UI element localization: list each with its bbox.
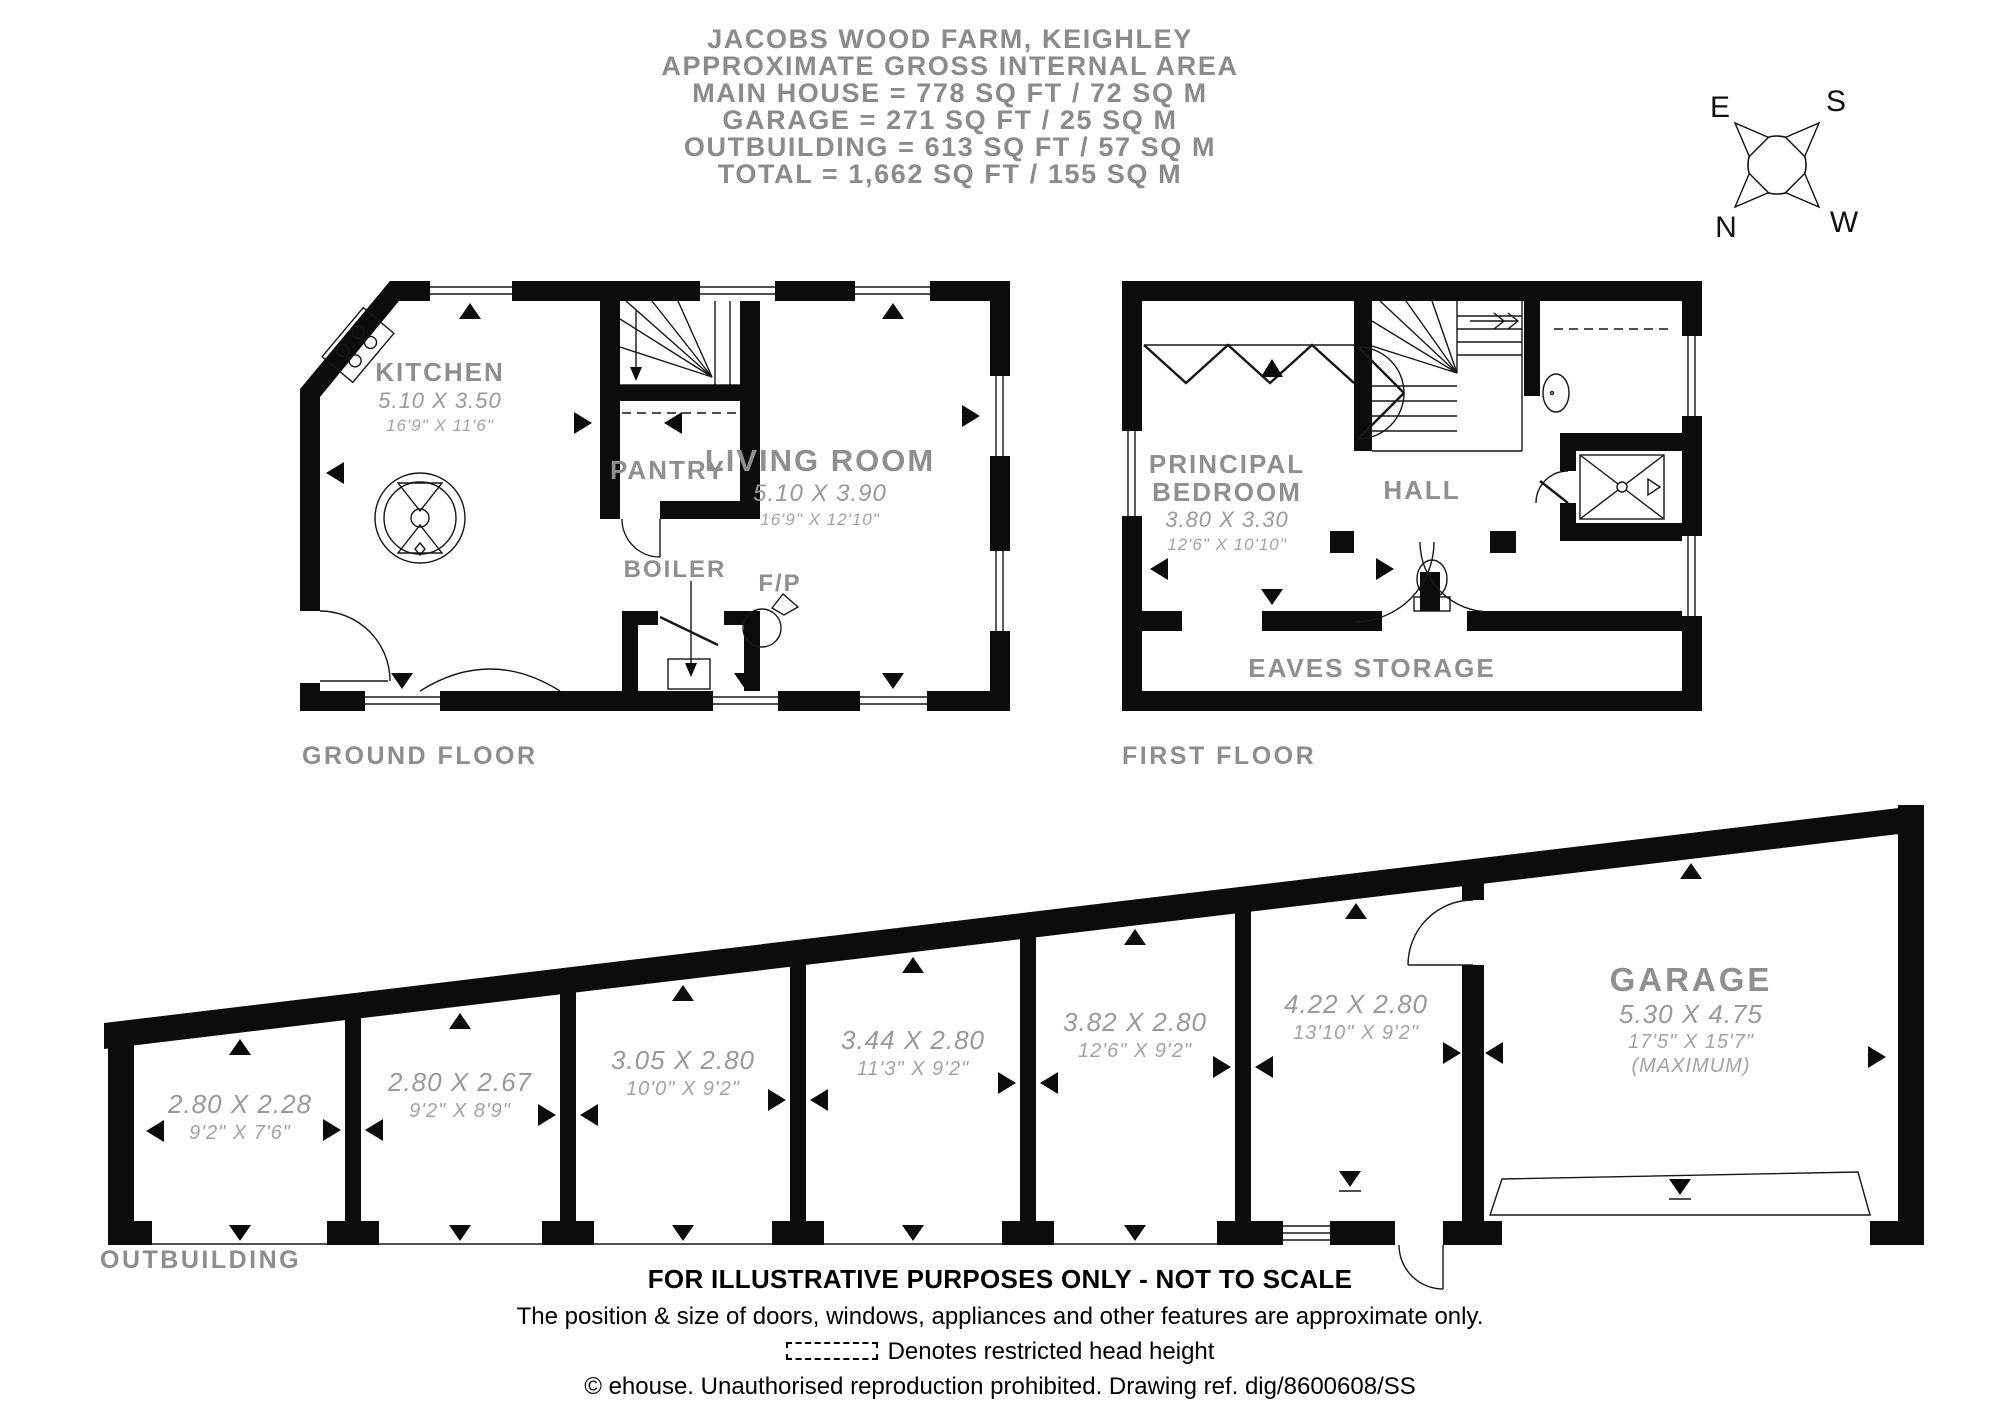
title-block: JACOBS WOOD FARM, KEIGHLEY APPROXIMATE G… (430, 26, 1470, 188)
living-room-metric: 5.10 X 3.90 (753, 480, 887, 507)
copyright-note: © ehouse. Unauthorised reproduction proh… (300, 1373, 1700, 1401)
garage-area: GARAGE = 271 SQ FT / 25 SQ M (430, 107, 1470, 134)
window-arrow-icon (449, 1225, 471, 1241)
outbuilding-plan: 2.80 X 2.28 9'2" X 7'6" 2.80 X 2.67 9'2"… (98, 795, 1928, 1295)
compass-west-label: W (1830, 206, 1859, 239)
window-arrow-icon (902, 1225, 924, 1241)
window-arrow-icon (538, 1104, 556, 1126)
approximate-note: The position & size of doors, windows, a… (300, 1303, 1700, 1331)
bay3-imperial: 10'0" X 9'2" (626, 1078, 740, 1100)
garage-imperial: 17'5" X 15'7" (1628, 1031, 1754, 1053)
bay6-imperial: 13'10" X 9'2" (1293, 1022, 1419, 1044)
principal-bedroom-metric: 3.80 X 3.30 (1165, 507, 1289, 532)
window-arrow-icon (1680, 863, 1702, 879)
window-arrow-icon (1339, 1171, 1361, 1187)
not-to-scale-note: FOR ILLUSTRATIVE PURPOSES ONLY - NOT TO … (300, 1264, 1700, 1295)
total-area: TOTAL = 1,662 SQ FT / 155 SQ M (430, 161, 1470, 188)
boiler-label: BOILER (624, 556, 727, 583)
bay2-metric: 2.80 X 2.67 (387, 1067, 533, 1097)
hall-label: HALL (1383, 475, 1460, 505)
eaves-storage-label: EAVES STORAGE (1248, 653, 1496, 683)
kitchen-imperial: 16'9" X 11'6" (386, 416, 494, 435)
first-floor-plan: PRINCIPAL BEDROOM 3.80 X 3.30 12'6" X 10… (1122, 281, 1702, 711)
bay4-metric: 3.44 X 2.80 (841, 1025, 985, 1055)
window-arrow-icon (229, 1225, 251, 1241)
ground-floor-title: GROUND FLOOR (302, 742, 538, 771)
property-title: JACOBS WOOD FARM, KEIGHLEY (430, 26, 1470, 53)
window-arrow-icon (1255, 1056, 1273, 1078)
fireplace-label: F/P (758, 570, 801, 597)
bay5-imperial: 12'6" X 9'2" (1078, 1040, 1192, 1062)
window-arrow-icon (1124, 929, 1146, 945)
window-arrow-icon (146, 1120, 164, 1142)
window-arrow-icon (580, 1104, 598, 1126)
kitchen-label: KITCHEN (375, 357, 505, 387)
bay5-metric: 3.82 X 2.80 (1063, 1007, 1207, 1037)
outbuilding-title: OUTBUILDING (100, 1246, 301, 1275)
window-arrow-icon (810, 1089, 828, 1111)
bay2-imperial: 9'2" X 8'9" (409, 1100, 511, 1122)
kitchen-metric: 5.10 X 3.50 (378, 388, 502, 413)
compass-east-label: E (1710, 91, 1730, 124)
main-house-area: MAIN HOUSE = 778 SQ FT / 72 SQ M (430, 80, 1470, 107)
legend-row: Denotes restricted head height (300, 1338, 1700, 1366)
window (1283, 1226, 1330, 1240)
footer-disclaimer: FOR ILLUSTRATIVE PURPOSES ONLY - NOT TO … (300, 1264, 1700, 1401)
window-arrow-icon (1124, 1225, 1146, 1241)
window-arrow-icon (1443, 1042, 1461, 1064)
principal-bedroom-label-1: PRINCIPAL (1149, 449, 1305, 479)
window-arrow-icon (365, 1119, 383, 1141)
garage-metric: 5.30 X 4.75 (1619, 999, 1763, 1029)
window-arrow-icon (1485, 1042, 1503, 1064)
bay4-imperial: 11'3" X 9'2" (857, 1058, 969, 1080)
window-arrow-icon (1868, 1046, 1886, 1068)
floorplan-page: JACOBS WOOD FARM, KEIGHLEY APPROXIMATE G… (0, 0, 2001, 1416)
bay1-metric: 2.80 X 2.28 (167, 1089, 312, 1119)
bay3-metric: 3.05 X 2.80 (611, 1045, 755, 1075)
restricted-head-height-icon (786, 1342, 878, 1360)
window-arrow-icon (323, 1119, 341, 1141)
living-room-label: LIVING ROOM (705, 443, 935, 478)
bay1-imperial: 9'2" X 7'6" (189, 1122, 291, 1144)
first-floor-title: FIRST FLOOR (1122, 742, 1316, 771)
entrance-door-opening (300, 611, 320, 683)
window-arrow-icon (768, 1089, 786, 1111)
compass-rose-icon: E S N W (1700, 75, 1870, 260)
area-subtitle: APPROXIMATE GROSS INTERNAL AREA (430, 53, 1470, 80)
window-arrow-icon (1040, 1072, 1058, 1094)
window-arrow-icon (1345, 903, 1367, 919)
compass-south-label: S (1826, 85, 1846, 118)
garage-door-swing (1408, 900, 1473, 965)
window-arrow-icon (902, 957, 924, 973)
bay6-metric: 4.22 X 2.80 (1284, 989, 1428, 1019)
living-room-imperial: 16'9" X 12'10" (760, 510, 880, 529)
ground-floor-plan: KITCHEN 5.10 X 3.50 16'9" X 11'6" PANTRY… (300, 281, 1010, 711)
outbuilding-area: OUTBUILDING = 613 SQ FT / 57 SQ M (430, 134, 1470, 161)
compass-north-label: N (1715, 211, 1737, 244)
window-arrow-icon (1213, 1056, 1231, 1078)
principal-bedroom-label-2: BEDROOM (1152, 477, 1302, 507)
garage-label: GARAGE (1610, 961, 1773, 998)
window-arrow-icon (449, 1013, 471, 1029)
window-arrow-icon (229, 1039, 251, 1055)
window-arrow-icon (672, 1225, 694, 1241)
window-arrow-icon (998, 1072, 1016, 1094)
legend-text: Denotes restricted head height (888, 1338, 1215, 1365)
window-arrow-icon (672, 985, 694, 1001)
principal-bedroom-imperial: 12'6" X 10'10" (1167, 535, 1287, 554)
garage-note: (MAXIMUM) (1632, 1055, 1751, 1077)
